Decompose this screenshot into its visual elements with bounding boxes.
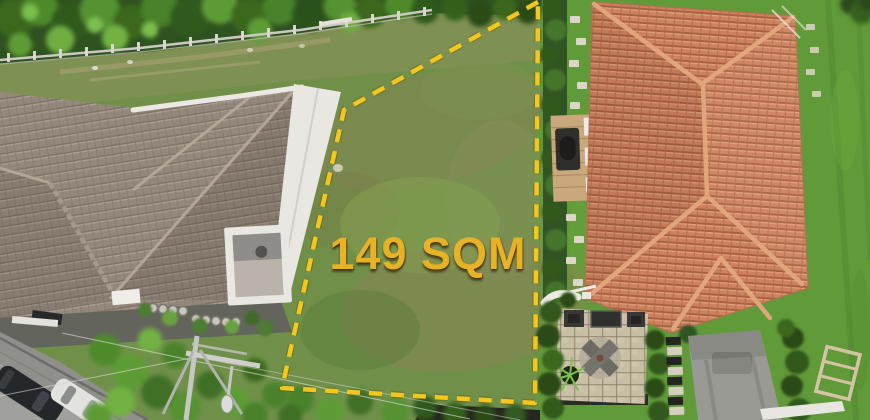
left-house-courtyard xyxy=(224,224,292,305)
aerial-photo: 149 SQM xyxy=(0,0,870,420)
patio-bench xyxy=(591,311,621,327)
aerial-scene xyxy=(0,0,870,420)
patio xyxy=(554,308,648,405)
right-house xyxy=(570,2,808,333)
white-post xyxy=(582,292,591,299)
rooftop-vent xyxy=(111,289,140,305)
area-label: 149 SQM xyxy=(329,228,526,280)
street-lamp xyxy=(221,395,233,413)
